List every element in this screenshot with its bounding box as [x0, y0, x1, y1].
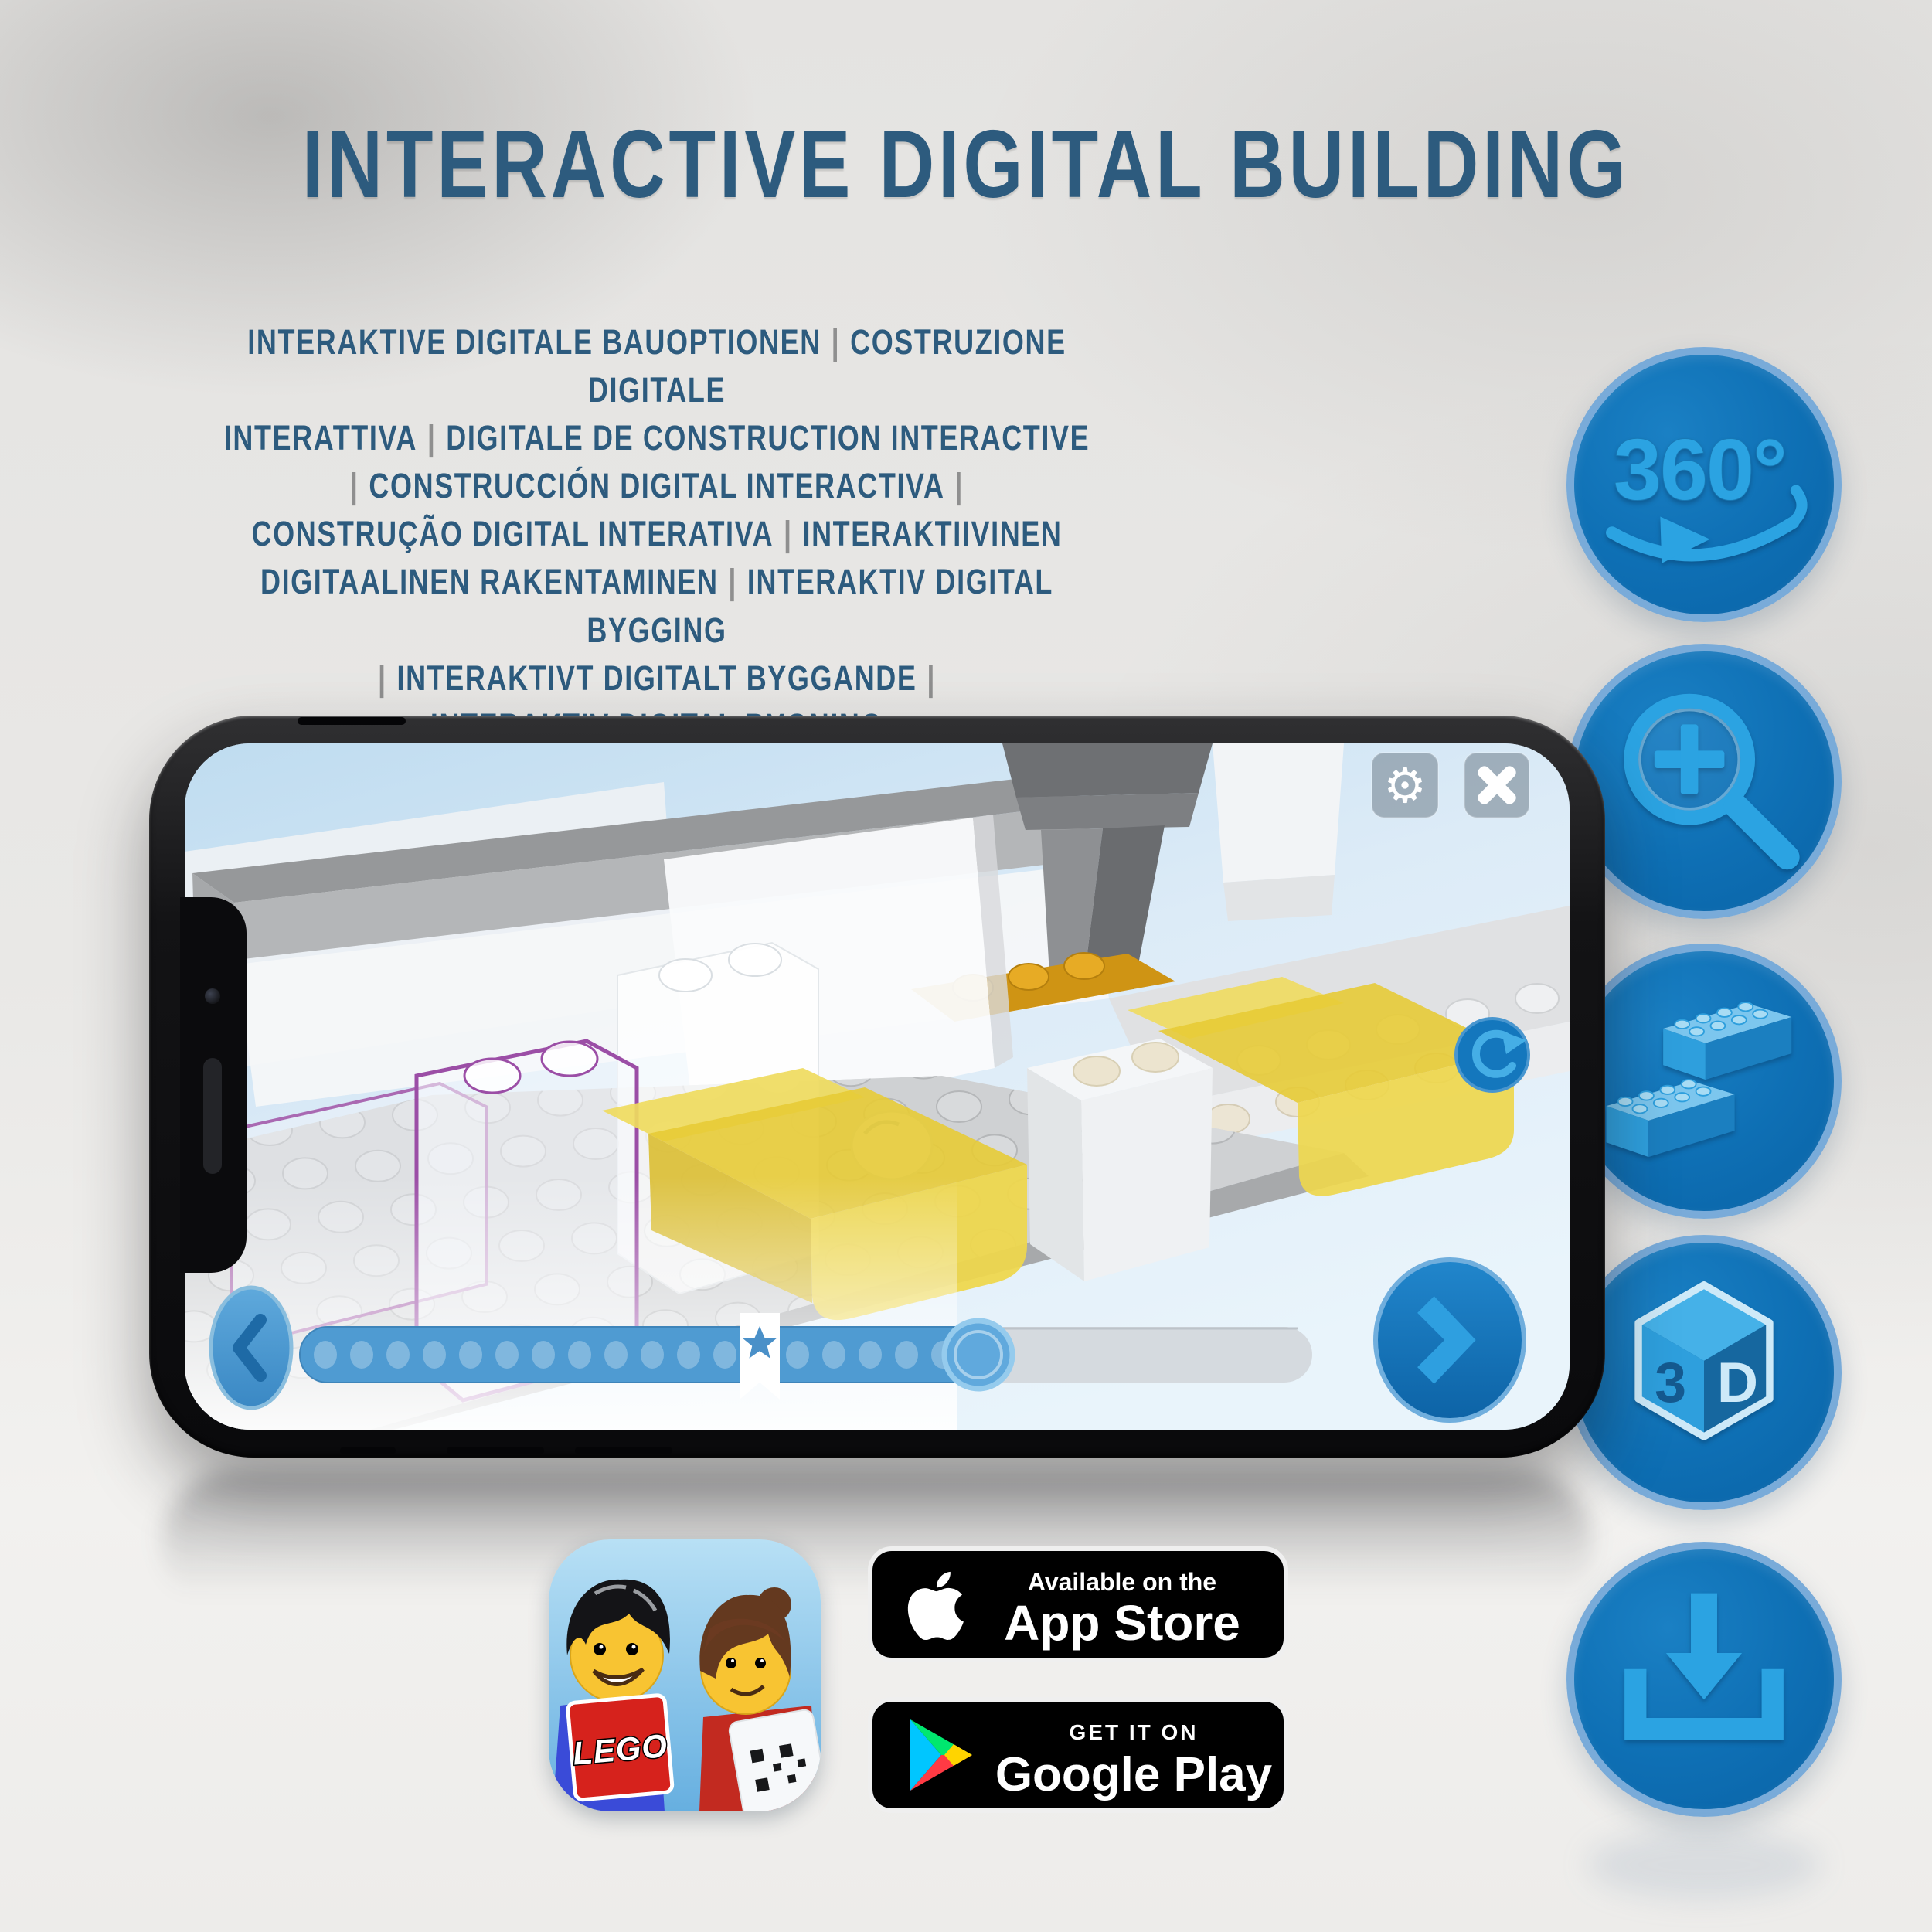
- close-button[interactable]: [1464, 753, 1529, 818]
- front-camera: [205, 988, 220, 1004]
- volume-down-button: [575, 1447, 672, 1454]
- page-title: INTERACTIVE DIGITAL BUILDING: [193, 110, 1739, 219]
- app-store-line2: App Store: [1004, 1595, 1240, 1651]
- lego-logo: LEGO: [567, 1695, 673, 1801]
- power-button: [298, 717, 406, 725]
- 360-label: 360°: [1614, 421, 1786, 518]
- subtitle-line: CONSTRUÇÃO DIGITAL INTERATIVA|INTERAKTII…: [218, 510, 1096, 558]
- 3d-cube-icon: 3 D: [1574, 1243, 1834, 1502]
- settings-button[interactable]: ⚙: [1372, 753, 1438, 818]
- building-scene: ⚙: [185, 743, 1570, 1430]
- lego-bricks-icon: [1574, 951, 1834, 1211]
- subtitle-line: |CONSTRUCCIÓN DIGITAL INTERACTIVA|: [218, 462, 1096, 510]
- phone-screen: ⚙: [185, 743, 1570, 1430]
- feature-360-rotation-icon: 360°: [1566, 347, 1842, 622]
- feature-download-icon: [1566, 1542, 1842, 1817]
- subtitle-line: DIGITAALINEN RAKENTAMINEN|INTERAKTIV DIG…: [218, 558, 1096, 654]
- feature-zoom-in-icon: [1566, 644, 1842, 919]
- rotate-reset-button[interactable]: [1456, 1019, 1529, 1091]
- magnifier-plus-icon: [1574, 651, 1834, 911]
- app-store-badge[interactable]: Available on the App Store: [867, 1546, 1289, 1663]
- feature-3d-view-icon: 3 D: [1566, 1235, 1842, 1510]
- feature-brick-building-icon: [1566, 944, 1842, 1219]
- progress-handle[interactable]: [944, 1321, 1012, 1389]
- promo-page: INTERACTIVE DIGITAL BUILDING INTERAKTIVE…: [0, 0, 1932, 1932]
- google-play-line2: Google Play: [995, 1748, 1273, 1801]
- phone-notch: [180, 897, 247, 1273]
- previous-step-button[interactable]: [211, 1287, 291, 1408]
- next-step-button[interactable]: [1376, 1260, 1524, 1420]
- google-play-badge[interactable]: GET IT ON Google Play: [867, 1696, 1289, 1814]
- gear-icon: ⚙: [1383, 757, 1427, 814]
- mute-switch: [340, 1447, 396, 1454]
- qr-card: [728, 1709, 821, 1811]
- app-store-line1: Available on the: [1028, 1568, 1216, 1596]
- cube-face-3: 3: [1655, 1350, 1686, 1414]
- earpiece-speaker: [203, 1058, 222, 1174]
- 360-degrees-icon: 360°: [1574, 355, 1834, 614]
- volume-up-button: [447, 1447, 544, 1454]
- subtitle-line: INTERATTIVA|DIGITALE DE CONSTRUCTION INT…: [218, 414, 1096, 462]
- subtitle: INTERAKTIVE DIGITALE BAUOPTIONEN|COSTRUZ…: [218, 318, 1096, 750]
- google-play-line1: GET IT ON: [1070, 1720, 1199, 1744]
- cube-face-d: D: [1717, 1350, 1758, 1414]
- phone-frame: ⚙: [149, 716, 1605, 1458]
- download-icon: [1574, 1549, 1834, 1809]
- circle-reflection: [1588, 1830, 1820, 1900]
- lego-app-icon: LEGO: [549, 1539, 821, 1811]
- subtitle-line: INTERAKTIVE DIGITALE BAUOPTIONEN|COSTRUZ…: [218, 318, 1096, 414]
- subtitle-line: |INTERAKTIVT DIGITALT BYGGANDE|: [218, 655, 1096, 702]
